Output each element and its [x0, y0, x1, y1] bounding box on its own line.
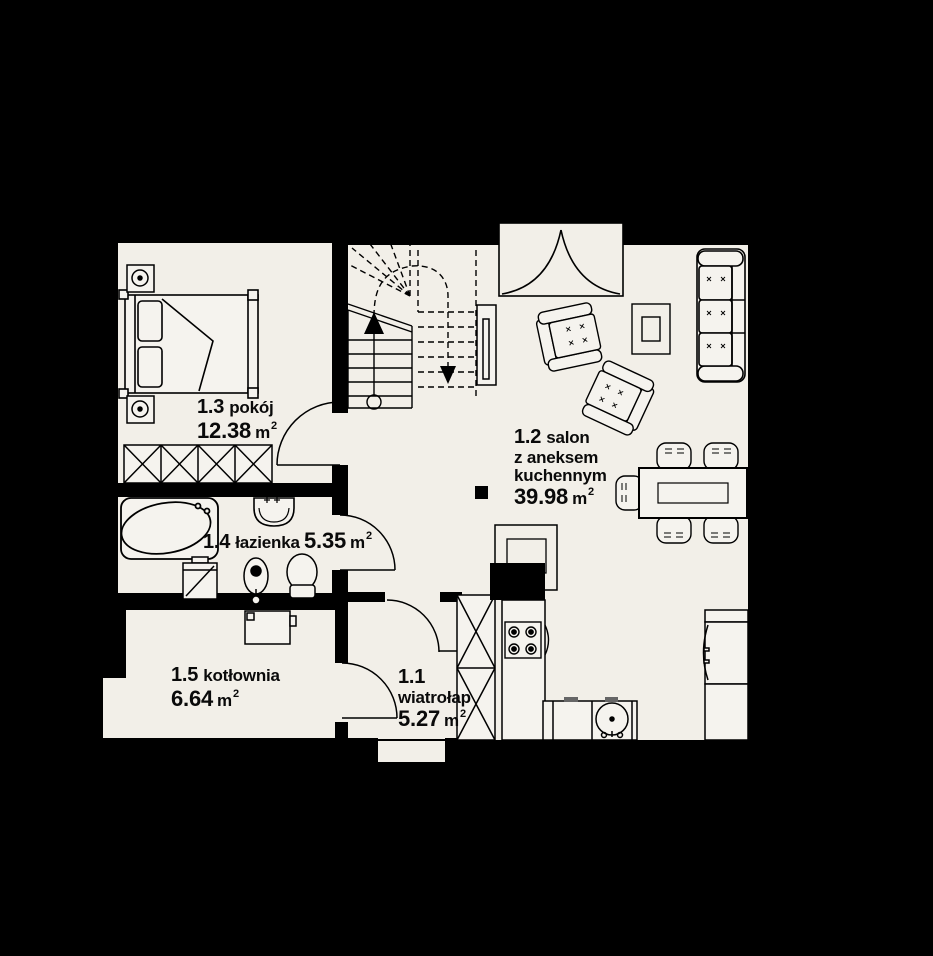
room-unit: m [255, 423, 270, 442]
room-area: 39.98 [514, 484, 568, 509]
armchair [534, 302, 603, 373]
column-marker [475, 486, 488, 499]
washbasin [254, 497, 294, 526]
room-unit-sup: 2 [233, 688, 239, 700]
dining-chair [704, 516, 738, 543]
room-area: 5.35 [304, 528, 346, 553]
floor-plan: 1.3pokój 12.38m2 1.4łazienka 5.35m2 1.5k… [0, 0, 933, 956]
kitchen-counter-left [502, 600, 545, 740]
sofa [697, 249, 745, 382]
bidet [244, 558, 268, 604]
room-name: wiatrołap [398, 688, 471, 707]
dining-chair [657, 516, 691, 543]
dining-chair [657, 443, 691, 470]
room-label-wiatrolap: 1.1 wiatrołap 5.27m2 [398, 667, 471, 731]
room-name-line3: kuchennym [514, 466, 607, 485]
room-label-salon: 1.2salon z aneksem kuchennym 39.98m2 [514, 427, 607, 509]
room-number: 1.3 [197, 396, 224, 418]
room-unit-sup: 2 [588, 486, 594, 498]
washing-machine [183, 557, 217, 599]
door-kotlownia [342, 663, 397, 718]
room-unit-sup: 2 [366, 530, 372, 542]
room-number: 1.5 [171, 664, 198, 686]
room-name-line2: z aneksem [514, 448, 598, 467]
tv-cabinet [477, 305, 496, 385]
door-pokoj [277, 402, 340, 465]
dining-table [639, 468, 747, 518]
room-unit: m [572, 489, 587, 508]
room-number: 1.4 [203, 531, 230, 553]
toilet [287, 554, 317, 598]
room-label-pokoj: 1.3pokój 12.38m2 [197, 397, 277, 442]
chimney [490, 525, 557, 600]
nightstand-lamp [127, 396, 154, 423]
room-unit: m [444, 711, 459, 730]
room-area: 5.27 [398, 706, 440, 731]
door-wiatrolap [387, 600, 464, 652]
staircase [348, 242, 476, 409]
room-area: 12.38 [197, 418, 251, 443]
wardrobe [124, 445, 272, 483]
coffee-table [632, 304, 670, 354]
room-number: 1.1 [398, 666, 425, 688]
room-label-lazienka: 1.4łazienka 5.35m2 [203, 529, 372, 554]
stairs-down-arrow [440, 366, 456, 384]
room-area: 6.64 [171, 686, 213, 711]
room-label-kotlownia: 1.5kotłownia 6.64m2 [171, 665, 280, 710]
room-unit: m [217, 691, 232, 710]
room-unit: m [350, 533, 365, 552]
plan-drawing [0, 0, 933, 956]
room-name: łazienka [235, 533, 300, 552]
room-name: salon [546, 428, 589, 447]
nightstand-lamp [127, 265, 154, 292]
room-number: 1.2 [514, 426, 541, 448]
boiler [245, 611, 296, 644]
bed [119, 290, 258, 398]
room-unit-sup: 2 [271, 420, 277, 432]
room-unit-sup: 2 [460, 708, 466, 720]
room-name: pokój [229, 398, 273, 417]
dining-chair [704, 443, 738, 470]
fridge [704, 610, 749, 740]
terrace-door [499, 223, 623, 296]
room-name: kotłownia [203, 666, 280, 685]
